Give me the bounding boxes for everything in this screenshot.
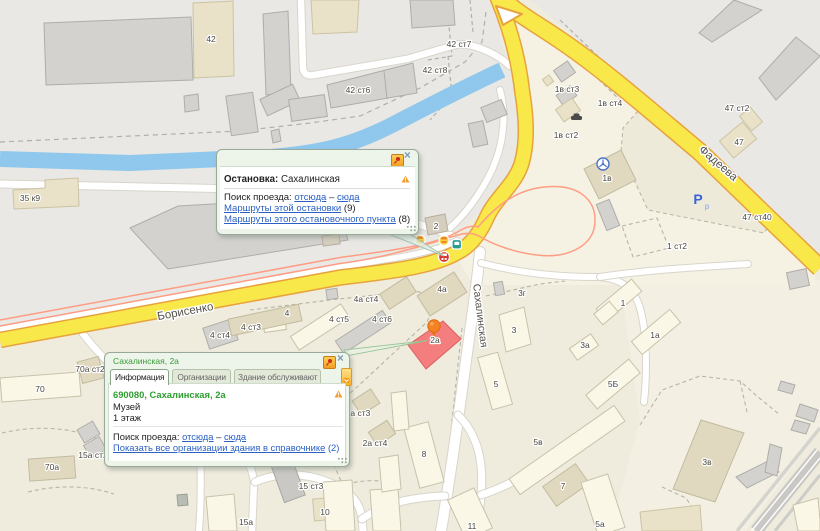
svg-text:5: 5 (494, 379, 499, 389)
svg-text:70а: 70а (45, 462, 59, 472)
svg-text:3: 3 (512, 325, 517, 335)
svg-text:47 ст40: 47 ст40 (742, 212, 772, 222)
svg-text:3г: 3г (518, 288, 526, 298)
svg-text:70: 70 (35, 384, 45, 394)
svg-text:3а: 3а (580, 340, 590, 350)
svg-text:3в: 3в (702, 457, 712, 467)
svg-text:1: 1 (621, 298, 626, 308)
svg-text:5в: 5в (533, 437, 543, 447)
svg-text:5а: 5а (595, 519, 605, 529)
svg-text:11: 11 (468, 521, 477, 531)
svg-text:4 ст4: 4 ст4 (210, 330, 230, 340)
svg-text:8: 8 (422, 449, 427, 459)
svg-text:2а ст4: 2а ст4 (363, 438, 388, 448)
svg-text:1в: 1в (602, 173, 612, 183)
svg-text:10: 10 (320, 507, 330, 517)
svg-text:4 ст3: 4 ст3 (241, 322, 261, 332)
svg-text:15а: 15а (239, 517, 253, 527)
svg-text:p: p (705, 202, 710, 211)
svg-text:42 ст8: 42 ст8 (423, 65, 448, 75)
svg-text:1в ст4: 1в ст4 (598, 98, 623, 108)
svg-text:35 к9: 35 к9 (20, 193, 41, 203)
svg-text:42 ст6: 42 ст6 (346, 85, 371, 95)
svg-text:42 ст7: 42 ст7 (447, 39, 472, 49)
svg-text:47: 47 (734, 137, 744, 147)
svg-text:4а: 4а (437, 284, 447, 294)
svg-text:5Б: 5Б (608, 379, 619, 389)
svg-text:4: 4 (285, 308, 290, 318)
svg-text:1 ст2: 1 ст2 (667, 241, 687, 251)
svg-text:2: 2 (434, 221, 439, 231)
svg-text:1а: 1а (650, 330, 660, 340)
svg-text:2а: 2а (430, 335, 440, 345)
svg-text:70а ст2: 70а ст2 (75, 364, 105, 374)
svg-text:4 ст6: 4 ст6 (372, 314, 392, 324)
svg-text:P: P (693, 191, 702, 207)
svg-text:1в ст3: 1в ст3 (555, 84, 580, 94)
svg-text:47 ст2: 47 ст2 (725, 103, 750, 113)
svg-text:4 ст5: 4 ст5 (329, 314, 349, 324)
svg-text:7: 7 (561, 481, 566, 491)
svg-text:1в ст2: 1в ст2 (554, 130, 579, 140)
svg-text:15 ст3: 15 ст3 (299, 481, 324, 491)
svg-text:4а ст4: 4а ст4 (354, 294, 379, 304)
svg-text:42: 42 (206, 34, 216, 44)
